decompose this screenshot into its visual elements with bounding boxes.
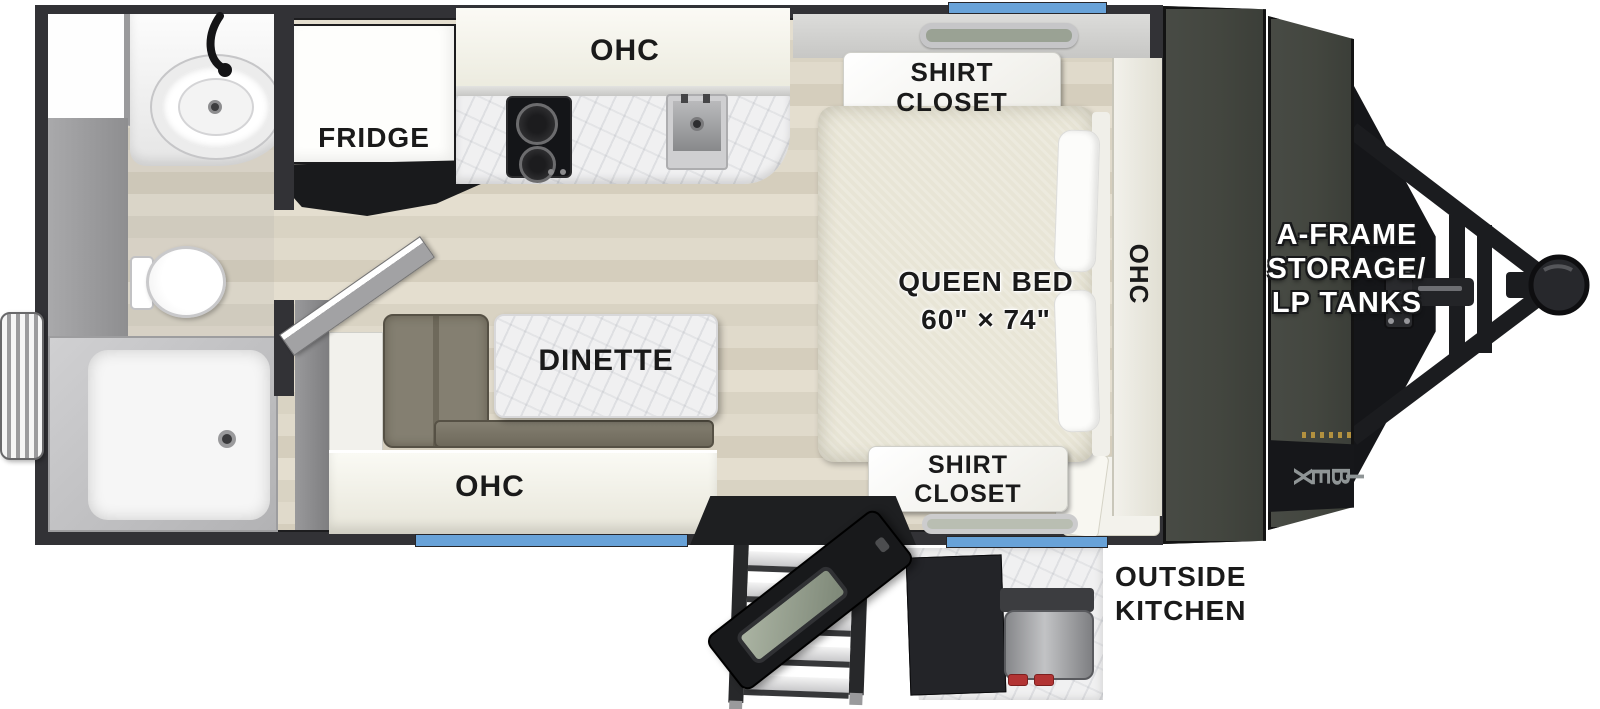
stove-knob (548, 169, 554, 175)
toilet (146, 246, 226, 318)
shirt-closet-rear-line1: SHIRT (868, 451, 1068, 480)
shower-drain-icon (218, 430, 236, 448)
outside-kitchen-label: OUTSIDE KITCHEN (1115, 560, 1300, 627)
stove-burner-front (519, 146, 556, 183)
window-top (948, 2, 1107, 14)
door-handle-icon (874, 536, 890, 553)
kitchen-ohc-edge (456, 86, 790, 96)
a-frame-storage-label: A-FRAME STORAGE/ LP TANKS (1252, 218, 1442, 321)
a-frame-line3: LP TANKS (1252, 286, 1442, 320)
dinette-ohc-label: OHC (390, 470, 590, 505)
bathroom-wall-panel (48, 118, 128, 368)
sink-drain-icon (208, 100, 222, 114)
queen-bed-name: QUEEN BED (856, 266, 1116, 298)
stove-burner-rear (516, 103, 558, 145)
bed-ohc-label: OHC (1121, 219, 1153, 329)
step-foot (849, 693, 862, 705)
shower-pan (88, 350, 270, 520)
dinette-label: DINETTE (506, 344, 706, 379)
shirt-closet-front-line1: SHIRT (843, 58, 1061, 88)
kitchen-faucet-icon (681, 94, 688, 103)
shirt-closet-front-label: SHIRT CLOSET (843, 58, 1061, 118)
bathroom-cabinet (48, 14, 130, 126)
floorplan-canvas: FRIDGE OHC DINETTE OHC SHIRT CLOSET QUEE… (0, 0, 1600, 709)
shirt-closet-front-line2: CLOSET (843, 88, 1061, 118)
step-foot (729, 701, 742, 709)
faucet-icon (190, 12, 250, 86)
kitchen-sink-drain-icon (690, 117, 704, 131)
queen-bed-size: 60" × 74" (856, 304, 1116, 336)
outside-kitchen-line1: OUTSIDE (1115, 560, 1300, 594)
window-bottom-left (415, 534, 688, 547)
brand-logo: XEBI (1286, 452, 1366, 500)
kitchen-ohc-label: OHC (525, 34, 725, 69)
closet-vent (922, 514, 1078, 534)
outside-kitchen-cabinet (906, 554, 1007, 695)
a-frame-line2: STORAGE/ (1252, 252, 1442, 286)
griddle (1004, 610, 1094, 680)
a-frame-line1: A-FRAME (1252, 218, 1442, 252)
window-bottom-right (946, 536, 1108, 548)
stove-knob (560, 169, 566, 175)
brand-accent-marks (1302, 432, 1352, 438)
shirt-closet-rear-label: SHIRT CLOSET (868, 451, 1068, 509)
fridge-label: FRIDGE (296, 122, 452, 154)
griddle-hood (1000, 588, 1094, 612)
front-storage-panel (1163, 6, 1266, 544)
pillow (1054, 129, 1101, 272)
outside-kitchen-line2: KITCHEN (1115, 594, 1300, 628)
dinette-bench-seat (434, 420, 714, 448)
bathroom-wall-upper (274, 14, 294, 210)
kitchen-faucet-icon (703, 94, 710, 103)
griddle-knob (1008, 674, 1028, 686)
roof-vent-front (920, 23, 1078, 48)
queen-bed-label: QUEEN BED 60" × 74" (856, 266, 1116, 336)
rear-exterior-accessory (0, 312, 44, 460)
griddle-knob (1034, 674, 1054, 686)
